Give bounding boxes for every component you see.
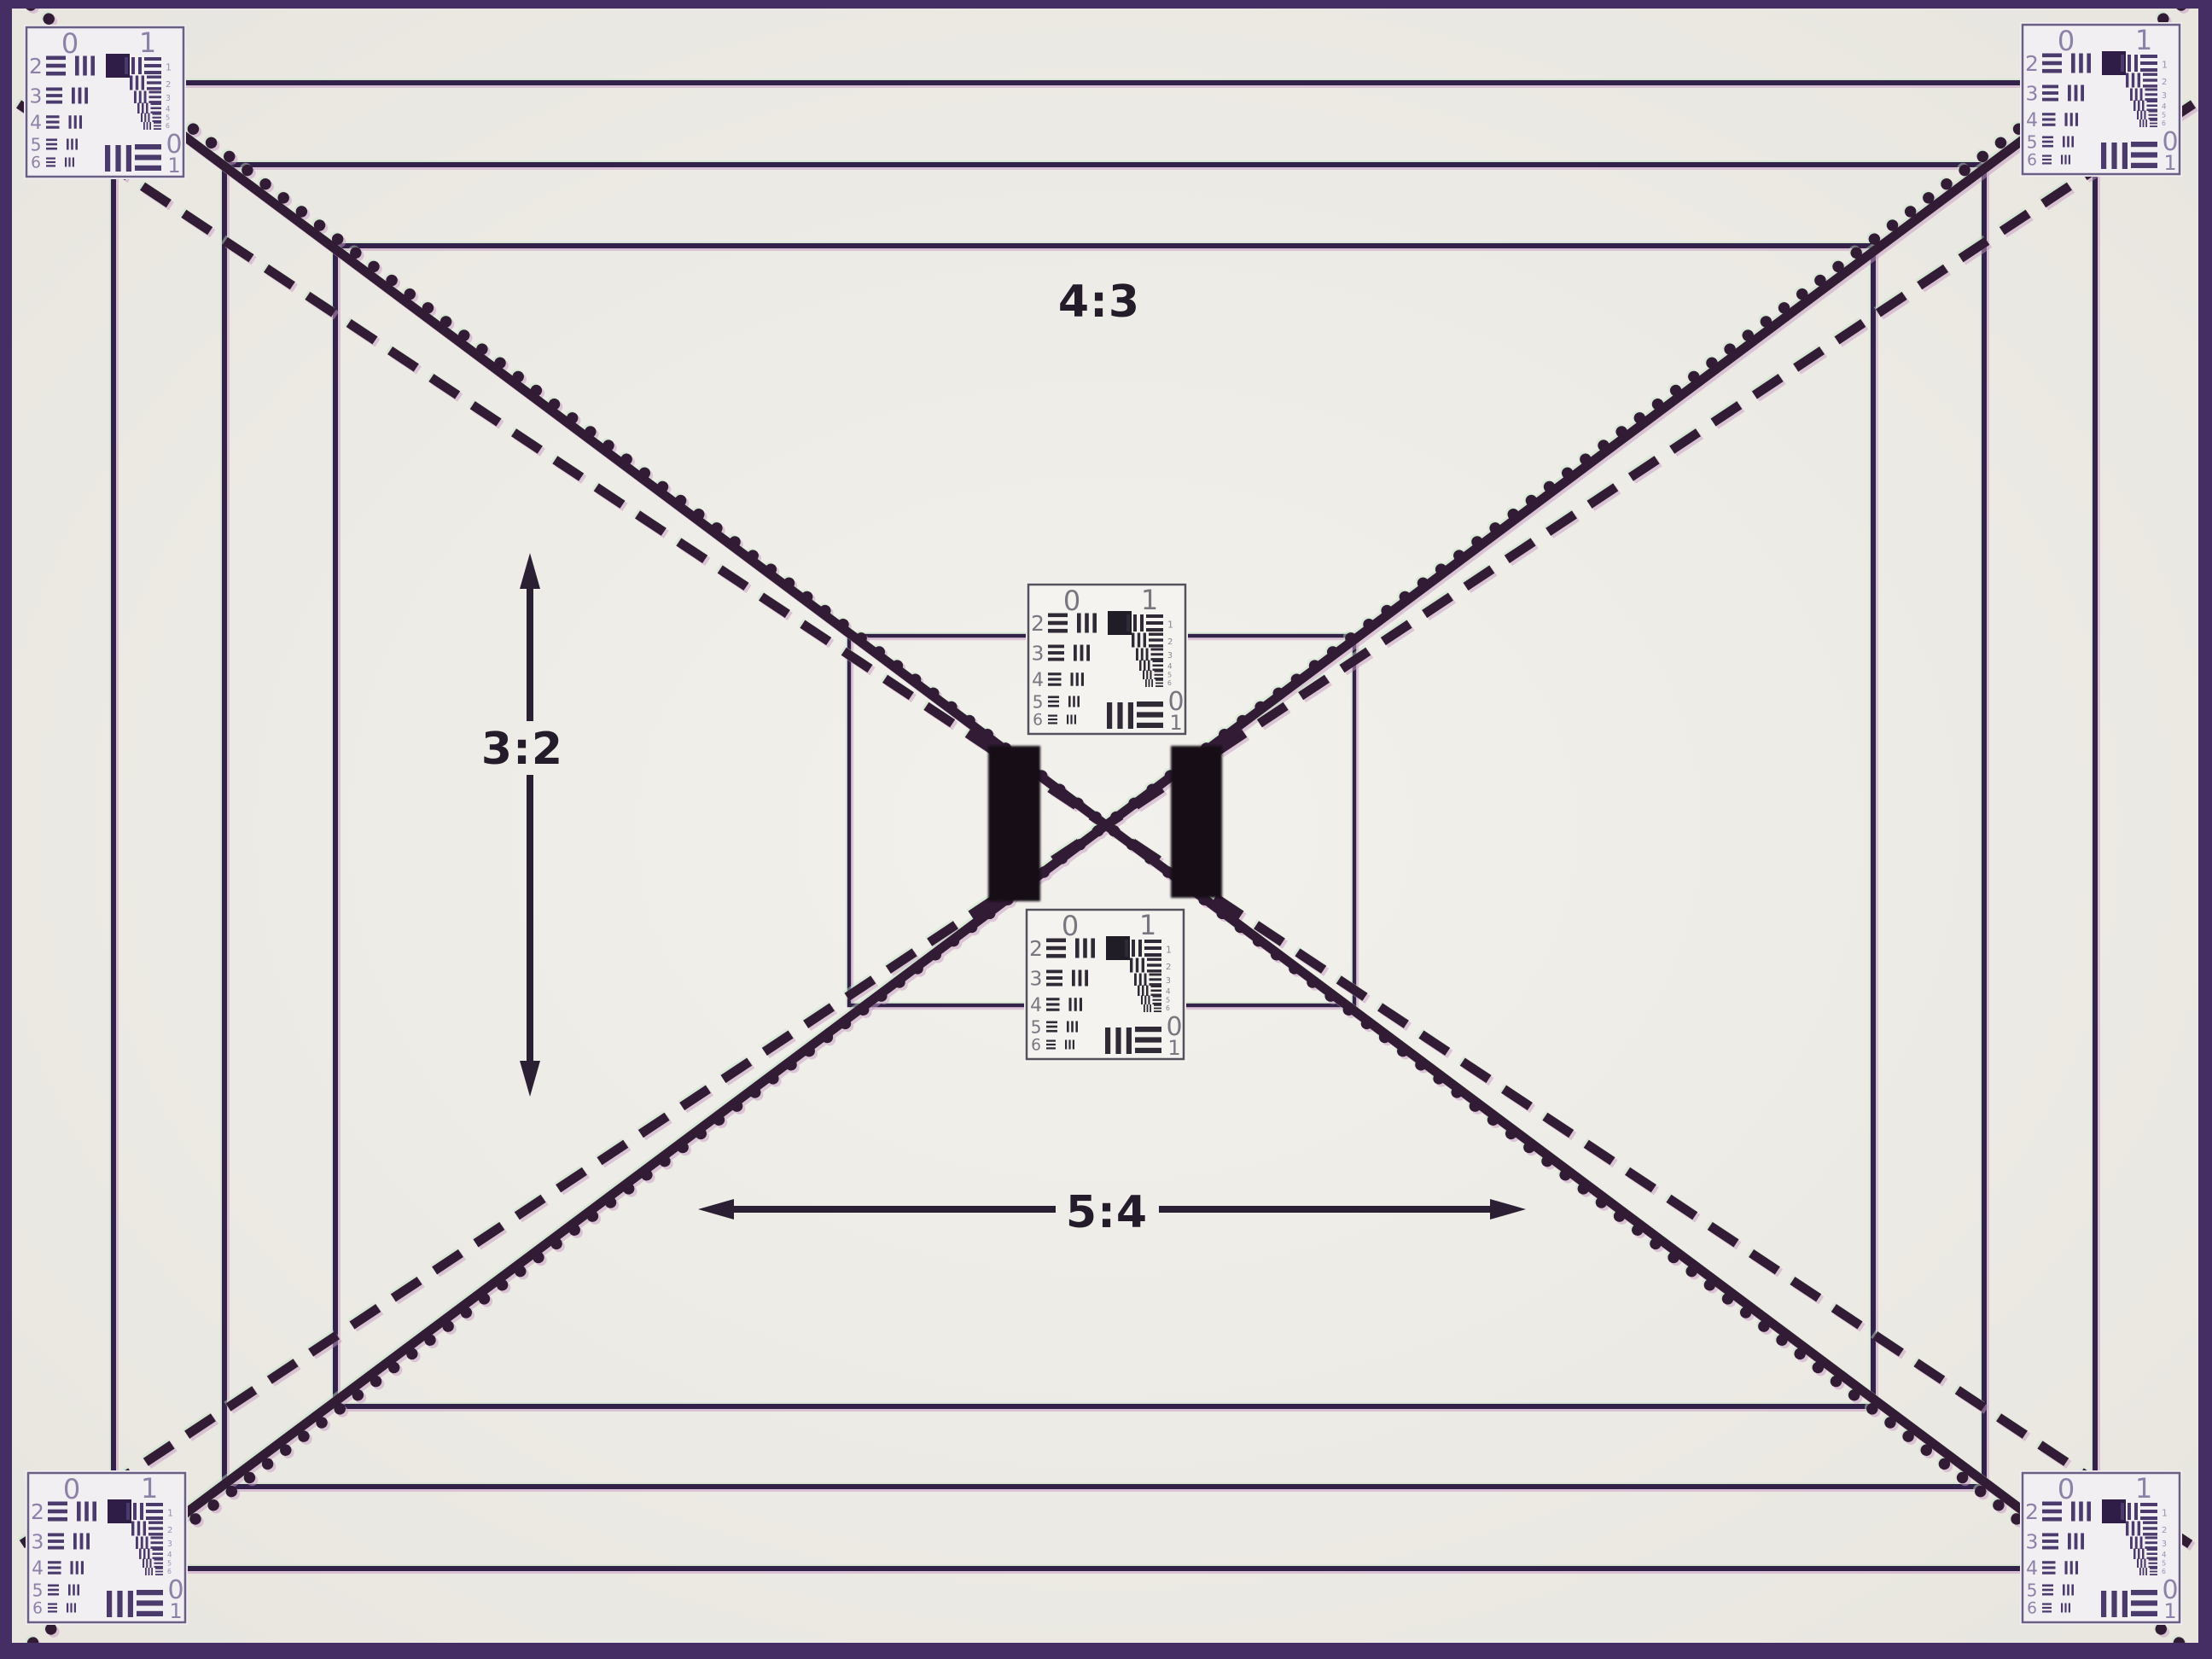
bar-trio-vertical: [125, 57, 142, 74]
target-group-label-1: 1: [141, 1472, 158, 1505]
target-element-number: 6: [2162, 1568, 2166, 1575]
bar-trio-horizontal: [2143, 1522, 2157, 1536]
bar-trio-horizontal: [2131, 1590, 2157, 1616]
target-element-number: 3: [167, 1540, 172, 1549]
target-mini-element-5: 5: [143, 1559, 172, 1569]
bar-trio-horizontal: [1048, 715, 1057, 725]
target-row-2: 2: [29, 54, 95, 79]
target-element-number: 6: [167, 1568, 172, 1575]
bar-trio-vertical: [1065, 1040, 1074, 1050]
bar-trio-vertical: [69, 115, 83, 129]
bar-trio-horizontal: [1135, 1027, 1161, 1053]
usaf-target-center-top: 012345612345601: [1026, 582, 1188, 736]
bar-trio-horizontal: [154, 1559, 164, 1569]
bar-trio-horizontal: [2147, 101, 2158, 112]
photo-border-right: [2198, 0, 2212, 1659]
bar-trio-vertical: [1107, 702, 1133, 729]
bar-trio-horizontal: [1048, 645, 1064, 661]
bar-trio-horizontal: [1147, 958, 1161, 973]
bar-trio-horizontal: [2042, 1534, 2058, 1550]
bar-trio-horizontal: [2140, 1503, 2157, 1520]
bar-trio-vertical: [134, 91, 147, 104]
bar-trio-vertical: [1071, 672, 1085, 686]
bar-trio-vertical: [1138, 986, 1149, 997]
target-row-number: 2: [1029, 936, 1043, 961]
target-row-2: 2: [1029, 936, 1095, 961]
target-mini-element-5: 5: [1143, 671, 1172, 680]
bar-trio-vertical: [1144, 1004, 1151, 1012]
target-element-number: 6: [2162, 119, 2166, 127]
bar-trio-horizontal: [1046, 939, 1066, 958]
target-group-label-1: 1: [2135, 1472, 2152, 1505]
target-row-number: 6: [1033, 712, 1043, 730]
bar-trio-horizontal: [144, 57, 161, 74]
bar-trio-horizontal: [1046, 998, 1060, 1011]
target-element-number: 2: [167, 1526, 172, 1535]
bar-trio-vertical: [2061, 155, 2070, 165]
target-element-number: 1: [1166, 945, 1172, 956]
target-element-number: 2: [1166, 963, 1171, 972]
bar-trio-horizontal: [2042, 54, 2062, 73]
aspect-label-5-4: 5:4: [1066, 1187, 1148, 1238]
bar-trio-vertical: [143, 122, 151, 130]
usaf-target-bottom-right: 012345612345601: [2020, 1470, 2182, 1625]
target-mini-element-5: 5: [1141, 996, 1170, 1005]
bar-trio-vertical: [2133, 1549, 2145, 1560]
target-row-number: 2: [2025, 1499, 2039, 1524]
target-group-label-1: 1: [2135, 24, 2152, 56]
bar-trio-vertical: [131, 1522, 146, 1536]
target-mini-element-6: 6: [143, 122, 170, 130]
bar-trio-horizontal: [2042, 113, 2056, 126]
bar-trio-vertical: [1068, 696, 1080, 707]
target-group-label-1: 1: [1141, 584, 1158, 616]
bar-trio-vertical: [2130, 89, 2143, 102]
bar-trio-horizontal: [2042, 1585, 2053, 1596]
target-row-number: 2: [31, 1499, 44, 1524]
target-row-number: 3: [2026, 81, 2039, 105]
test-chart-svg: 0123456123456010123456123456010123456123…: [0, 0, 2212, 1659]
bar-trio-vertical: [2133, 101, 2145, 112]
bar-trio-horizontal: [154, 122, 161, 130]
bar-trio-vertical: [2068, 85, 2084, 102]
bar-trio-horizontal: [1137, 701, 1163, 728]
target-element-number: 5: [2162, 111, 2166, 119]
target-row-number: 3: [1032, 641, 1045, 665]
bar-trio-vertical: [130, 76, 144, 90]
bar-trio-horizontal: [2150, 119, 2157, 127]
lens-test-chart-photo: 0123456123456010123456123456010123456123…: [0, 0, 2212, 1659]
target-group-label-0: 0: [1063, 585, 1080, 617]
bar-trio-vertical: [2068, 1534, 2084, 1550]
bar-trio-horizontal: [2042, 137, 2053, 148]
bar-trio-vertical: [1143, 671, 1152, 680]
bar-trio-horizontal: [1150, 974, 1162, 987]
target-row-number: 5: [1033, 691, 1044, 712]
bar-trio-vertical: [1145, 679, 1153, 687]
bar-trio-vertical: [67, 1604, 76, 1613]
bar-trio-vertical: [107, 1591, 133, 1617]
target-row-number: 6: [32, 1600, 43, 1618]
target-element-number: 5: [2162, 1559, 2166, 1568]
bar-trio-vertical: [137, 103, 148, 114]
target-row-2: 2: [2025, 1499, 2091, 1524]
target-mini-element-4: 4: [2133, 101, 2167, 112]
target-element-number: 1: [2162, 1508, 2168, 1519]
bar-trio-horizontal: [1048, 696, 1059, 707]
bar-trio-vertical: [2065, 113, 2079, 126]
bar-trio-vertical: [2101, 143, 2128, 169]
bar-trio-horizontal: [137, 1590, 163, 1616]
target-group-label-0: 0: [1062, 910, 1079, 942]
bar-trio-horizontal: [2042, 155, 2052, 165]
target-row-number: 5: [32, 1580, 44, 1600]
target-mini-element-5: 5: [141, 114, 170, 123]
target-element-number: 1: [1167, 620, 1173, 631]
bar-trio-vertical: [139, 1549, 150, 1560]
bar-trio-vertical: [1067, 715, 1076, 725]
bar-trio-horizontal: [48, 1534, 64, 1550]
bar-trio-horizontal: [2131, 142, 2157, 168]
target-row-2: 2: [1031, 611, 1097, 636]
bar-trio-vertical: [2101, 1591, 2128, 1617]
bar-trio-vertical: [141, 114, 150, 123]
target-element-number: 5: [166, 114, 170, 122]
bar-trio-horizontal: [1149, 633, 1163, 648]
target-row-number: 2: [29, 54, 43, 79]
bar-trio-vertical: [1141, 996, 1150, 1005]
bar-trio-vertical: [1126, 614, 1144, 632]
bar-trio-vertical: [1067, 1022, 1078, 1033]
target-group-label-0: 0: [2058, 25, 2075, 57]
bar-trio-horizontal: [46, 139, 57, 150]
bar-trio-horizontal: [153, 114, 162, 123]
bar-trio-vertical: [2130, 1537, 2143, 1550]
target-group-label-1-bottom: 1: [1169, 711, 1182, 735]
bar-trio-vertical: [1074, 645, 1090, 661]
photo-border-bottom: [0, 1643, 2212, 1659]
target-row-number: 4: [32, 1558, 44, 1580]
bar-trio-horizontal: [147, 76, 161, 90]
bar-trio-horizontal: [1154, 1004, 1161, 1012]
target-element-number: 1: [2162, 60, 2168, 71]
target-row-number: 5: [2027, 1580, 2038, 1600]
bar-trio-vertical: [2121, 1503, 2138, 1520]
target-row-number: 6: [2027, 152, 2037, 170]
target-element-number: 6: [166, 122, 170, 130]
target-row-number: 5: [1031, 1016, 1042, 1037]
target-row-number: 2: [2025, 51, 2039, 76]
target-group-label-1-bottom: 1: [2163, 151, 2176, 175]
bar-trio-horizontal: [1146, 614, 1163, 632]
target-element-number: 2: [166, 80, 171, 90]
bar-trio-horizontal: [135, 144, 161, 171]
bar-trio-horizontal: [151, 103, 162, 114]
bar-trio-vertical: [2071, 1502, 2091, 1522]
target-row-number: 3: [1030, 966, 1043, 990]
bar-trio-horizontal: [46, 158, 55, 167]
bar-trio-horizontal: [148, 1522, 163, 1536]
focus-bar-right: [1171, 746, 1222, 898]
bar-trio-vertical: [2137, 1559, 2146, 1569]
bar-trio-horizontal: [1155, 679, 1163, 687]
target-element-number: 6: [1167, 679, 1172, 687]
target-group-label-1-bottom: 1: [2163, 1599, 2176, 1623]
bar-trio-horizontal: [1153, 661, 1164, 672]
usaf-target-top-left: 012345612345601: [24, 25, 186, 179]
target-mini-element-5: 5: [2137, 1559, 2166, 1569]
target-row-2: 2: [31, 1499, 96, 1524]
bar-trio-horizontal: [48, 1604, 57, 1613]
bar-trio-horizontal: [48, 1561, 61, 1575]
bar-trio-horizontal: [2140, 55, 2157, 72]
bar-trio-vertical: [2071, 54, 2091, 73]
target-mini-element-6: 6: [2139, 119, 2166, 127]
bar-trio-vertical: [71, 1561, 84, 1575]
bar-trio-vertical: [136, 1537, 148, 1550]
target-element-number: 5: [1166, 996, 1170, 1004]
bar-trio-horizontal: [1046, 1022, 1057, 1033]
bar-trio-vertical: [65, 158, 74, 167]
focus-bar-left: [988, 746, 1040, 901]
bar-trio-vertical: [2121, 55, 2138, 72]
bar-trio-vertical: [2126, 73, 2140, 88]
bar-trio-horizontal: [2150, 1568, 2157, 1575]
bar-trio-horizontal: [1155, 671, 1164, 680]
bar-trio-horizontal: [1153, 996, 1162, 1005]
bar-trio-vertical: [1072, 970, 1088, 987]
target-group-label-1-bottom: 1: [1167, 1036, 1180, 1060]
target-mini-element-4: 4: [139, 1549, 172, 1560]
usaf-target-bottom-left: 012345612345601: [26, 1470, 188, 1625]
bar-trio-vertical: [1077, 614, 1097, 633]
target-row-number: 3: [30, 84, 43, 108]
bar-trio-horizontal: [2149, 1559, 2158, 1569]
aspect-label-3-2: 3:2: [481, 724, 563, 775]
bar-trio-vertical: [2061, 1604, 2070, 1613]
usaf-target-top-right: 012345612345601: [2020, 22, 2182, 177]
bar-trio-vertical: [2063, 137, 2074, 148]
target-element-number: 3: [2162, 1540, 2167, 1549]
bar-trio-vertical: [1130, 958, 1144, 973]
bar-trio-horizontal: [146, 1503, 163, 1520]
bar-trio-vertical: [1069, 998, 1083, 1011]
bar-trio-vertical: [72, 88, 88, 104]
target-element-number: 5: [1167, 671, 1172, 679]
target-group-label-1-bottom: 1: [169, 1599, 182, 1623]
target-row-number: 6: [31, 154, 41, 172]
bar-trio-horizontal: [155, 1568, 163, 1575]
bar-trio-vertical: [1125, 940, 1142, 957]
bar-trio-horizontal: [149, 91, 162, 104]
bar-trio-horizontal: [46, 88, 62, 104]
bar-trio-vertical: [68, 1585, 79, 1596]
target-mini-element-6: 6: [1145, 679, 1172, 687]
bar-trio-vertical: [1134, 974, 1147, 987]
bar-trio-horizontal: [2042, 1561, 2056, 1575]
target-element-number: 1: [167, 1508, 173, 1519]
target-mini-element-4: 4: [2133, 1549, 2167, 1560]
target-element-number: 3: [2162, 91, 2167, 101]
bar-trio-horizontal: [48, 1502, 67, 1522]
bar-trio-horizontal: [2042, 85, 2058, 102]
target-mini-element-4: 4: [1139, 661, 1173, 672]
target-element-number: 2: [1167, 637, 1173, 647]
bar-trio-horizontal: [1046, 1040, 1056, 1050]
target-mini-element-6: 6: [2139, 1568, 2166, 1575]
target-element-number: 6: [1166, 1004, 1170, 1012]
bar-trio-vertical: [2065, 1561, 2079, 1575]
bar-trio-vertical: [1136, 649, 1149, 661]
target-element-number: 3: [1167, 651, 1173, 661]
bar-trio-horizontal: [1046, 970, 1062, 987]
target-mini-element-6: 6: [145, 1568, 172, 1575]
bar-trio-horizontal: [2147, 1549, 2158, 1560]
target-element-number: 1: [166, 62, 172, 73]
target-group-label-0: 0: [2058, 1473, 2075, 1505]
target-mini-element-4: 4: [137, 103, 171, 114]
bar-trio-vertical: [73, 1534, 90, 1550]
target-row-number: 3: [2026, 1529, 2039, 1553]
bar-trio-horizontal: [153, 1549, 164, 1560]
target-mini-element-4: 4: [1138, 986, 1171, 997]
bar-trio-vertical: [2137, 111, 2146, 120]
bar-trio-horizontal: [151, 1537, 164, 1550]
bar-trio-horizontal: [46, 115, 60, 129]
target-group-label-1-bottom: 1: [167, 154, 180, 178]
target-row-number: 6: [1031, 1037, 1041, 1055]
target-mini-element-6: 6: [1144, 1004, 1170, 1012]
target-element-number: 2: [2162, 78, 2167, 87]
photo-border-top: [0, 0, 2212, 9]
bar-trio-vertical: [1132, 633, 1146, 648]
bar-trio-vertical: [126, 1503, 143, 1520]
bar-trio-vertical: [77, 1502, 96, 1522]
bar-trio-vertical: [145, 1568, 153, 1575]
bar-trio-vertical: [75, 56, 95, 76]
bar-trio-horizontal: [1151, 986, 1162, 997]
target-row-number: 4: [1030, 995, 1042, 1016]
bar-trio-horizontal: [1144, 940, 1161, 957]
target-group-label-0: 0: [63, 1473, 80, 1505]
target-element-number: 2: [2162, 1526, 2167, 1535]
bar-trio-horizontal: [2042, 1604, 2052, 1613]
usaf-target-center-bottom: 012345612345601: [1024, 907, 1186, 1062]
target-group-label-1: 1: [1139, 909, 1156, 941]
target-row-number: 4: [30, 113, 42, 134]
target-row-number: 3: [32, 1529, 44, 1553]
bar-trio-horizontal: [1151, 649, 1164, 661]
bar-trio-horizontal: [1048, 672, 1062, 686]
bar-trio-horizontal: [2042, 1502, 2062, 1522]
bar-trio-vertical: [2139, 1568, 2147, 1575]
bar-trio-vertical: [1105, 1027, 1132, 1054]
bar-trio-horizontal: [1048, 614, 1068, 633]
bar-trio-vertical: [2063, 1585, 2074, 1596]
target-element-number: 3: [1166, 976, 1171, 986]
target-group-label-1: 1: [139, 26, 156, 59]
bar-trio-vertical: [2126, 1522, 2140, 1536]
target-row-number: 2: [1031, 611, 1045, 636]
target-row-number: 4: [2026, 110, 2038, 131]
target-row-number: 4: [1032, 670, 1044, 691]
bar-trio-vertical: [1139, 661, 1150, 672]
bar-trio-horizontal: [2149, 111, 2158, 120]
target-element-number: 5: [167, 1559, 172, 1568]
bar-trio-horizontal: [48, 1585, 59, 1596]
photo-border-left: [0, 0, 12, 1659]
target-mini-element-5: 5: [2137, 111, 2166, 120]
target-row-number: 6: [2027, 1600, 2037, 1618]
bar-trio-vertical: [143, 1559, 152, 1569]
bar-trio-vertical: [2139, 119, 2147, 127]
target-element-number: 3: [166, 94, 171, 103]
aspect-label-4-3: 4:3: [1058, 276, 1140, 328]
target-row-number: 5: [31, 134, 42, 154]
bar-trio-horizontal: [2145, 89, 2158, 102]
target-row-number: 4: [2026, 1558, 2038, 1580]
bar-trio-horizontal: [2143, 73, 2157, 88]
bar-trio-vertical: [67, 139, 78, 150]
bar-trio-vertical: [1075, 939, 1095, 958]
target-row-2: 2: [2025, 51, 2091, 76]
bar-trio-vertical: [105, 145, 131, 172]
bar-trio-horizontal: [2145, 1537, 2158, 1550]
bar-trio-horizontal: [46, 56, 66, 76]
target-group-label-0: 0: [61, 27, 79, 60]
target-row-number: 5: [2027, 131, 2038, 152]
